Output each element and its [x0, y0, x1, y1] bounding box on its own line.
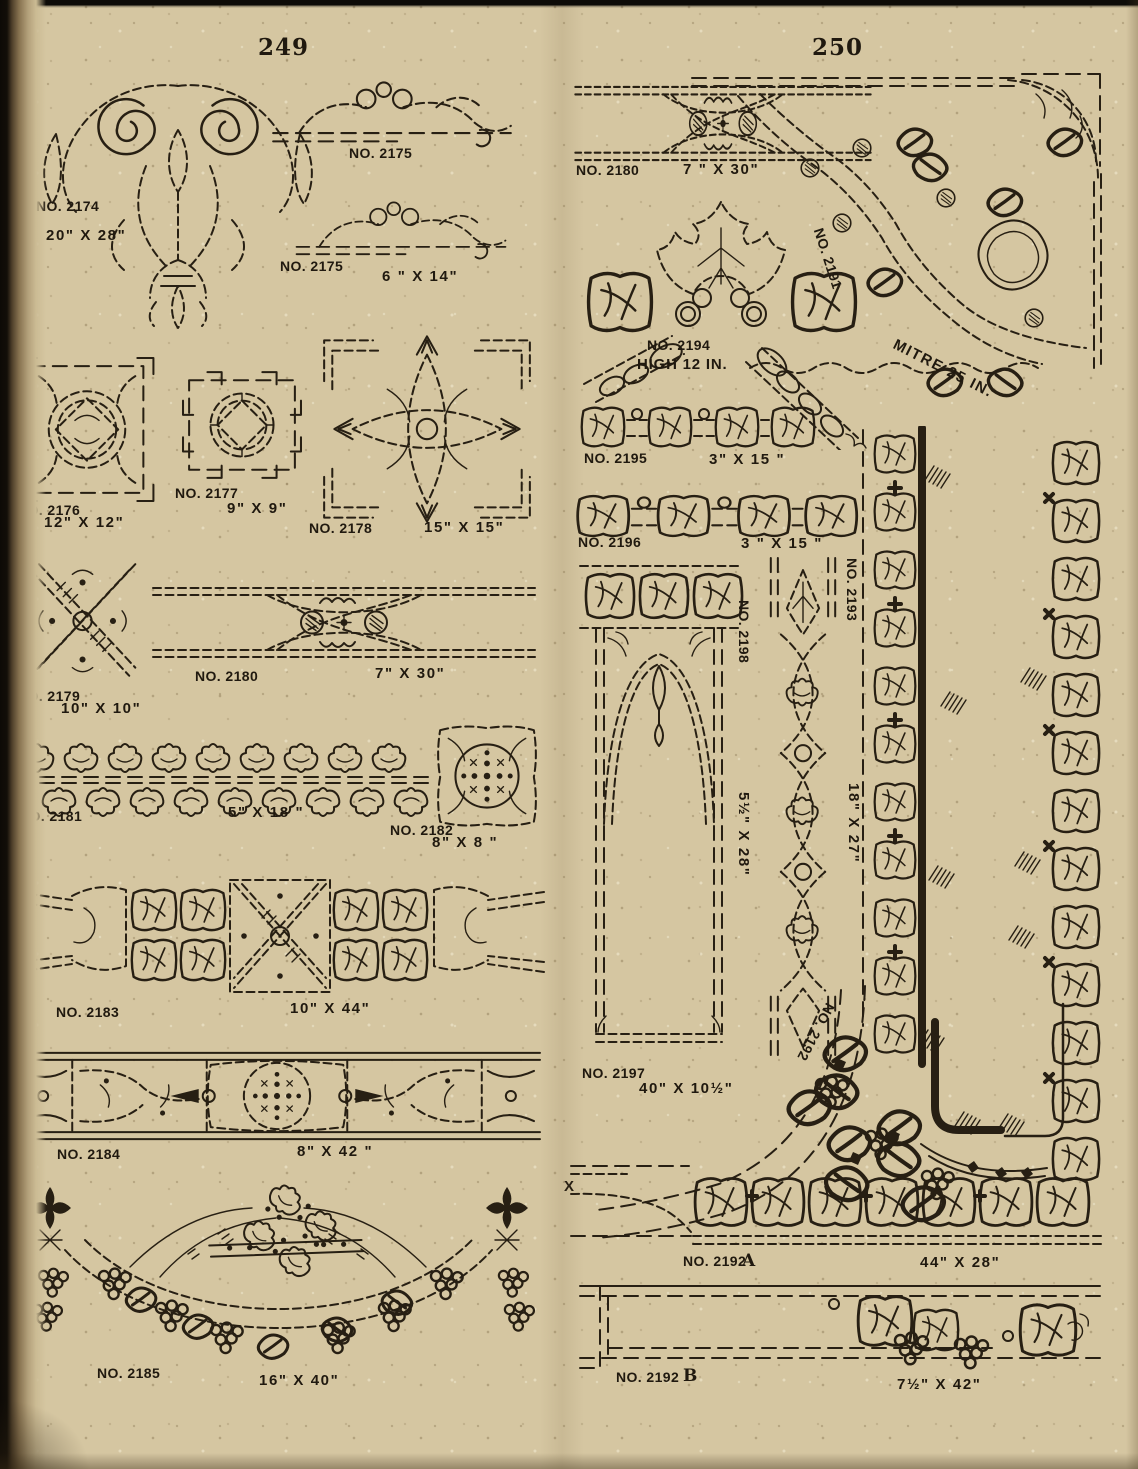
catalog-number-2184: NO. 2184 [57, 1146, 120, 1162]
dimensions-2184: 8" X 42 " [297, 1143, 373, 1160]
catalog-number-2178: NO. 2178 [309, 520, 372, 536]
dimensions-2180-right: 7 " X 30" [683, 161, 759, 178]
scan-edge-top [0, 0, 1138, 8]
dimensions-2185: 16" X 40" [259, 1372, 339, 1389]
scan-corner-shadow [0, 1399, 90, 1469]
catalog-number-2185: NO. 2185 [97, 1365, 160, 1381]
dimensions-2196: 3 " X 15 " [741, 535, 823, 552]
catalog-number-2177: NO. 2177 [175, 485, 238, 501]
scan-edge-right [1126, 0, 1138, 1469]
catalog-number-2198: NO. 2198 [736, 600, 752, 663]
catalog-number-2174: NO. 2174 [36, 198, 99, 214]
stencil-art-2179 [16, 552, 144, 694]
variant-letter-2192-a: A [742, 1251, 756, 1271]
dimensions-2183: 10" X 44" [290, 1000, 370, 1017]
stencil-art-2184 [10, 1040, 544, 1152]
x-reference-marker: X [564, 1178, 574, 1195]
stencil-art-2176 [16, 352, 158, 508]
catalog-number-2196: NO. 2196 [578, 534, 641, 550]
variant-letter-2192-b: B [683, 1366, 698, 1386]
dimensions-2198: 5½" X 28" [735, 792, 752, 877]
catalog-number-2192-b: NO. 2192 [616, 1369, 679, 1385]
stencil-art-2185 [10, 1182, 548, 1378]
catalog-scan-page: 249 250 NO. 2174 20" X 28" NO. 2175 NO. … [0, 0, 1138, 1469]
stencil-art-2183 [12, 866, 548, 1008]
dimensions-2195: 3" X 15 " [709, 451, 785, 468]
dimensions-2174: 20" X 28" [46, 227, 126, 244]
catalog-number-2194: NO. 2194 [647, 337, 710, 353]
dimensions-2197: 40" X 10½" [639, 1080, 733, 1097]
dimensions-2192-a: 44" X 28" [920, 1254, 1000, 1271]
stencil-art-2192-b [572, 1276, 1104, 1374]
catalog-number-2195: NO. 2195 [584, 450, 647, 466]
catalog-number-2180-left: NO. 2180 [195, 668, 258, 684]
stencil-art-2182 [432, 720, 542, 832]
catalog-number-2192-a: NO. 2192 [683, 1253, 746, 1269]
dimensions-2177: 9" X 9" [227, 500, 287, 517]
catalog-number-2181: NO. 2181 [19, 808, 82, 824]
dimensions-2180-left: 7" X 30" [375, 665, 445, 682]
dimensions-2194-height: HIGH 12 IN. [637, 356, 728, 373]
page-number-left: 249 [258, 34, 309, 61]
catalog-number-2175-top: NO. 2175 [349, 145, 412, 161]
dimensions-2182: 8" X 8 " [432, 834, 498, 851]
stencil-art-2180-left [148, 572, 540, 672]
catalog-number-2180-right: NO. 2180 [576, 162, 639, 178]
stencil-art-2178 [316, 328, 538, 530]
catalog-number-2193: NO. 2193 [844, 558, 860, 621]
dimensions-2175: 6 " X 14" [382, 268, 458, 285]
page-number-right: 250 [812, 34, 863, 61]
dimensions-2176: 12" X 12" [44, 514, 124, 531]
dimensions-2193: 18" X 27" [845, 783, 862, 863]
catalog-number-2175-bottom: NO. 2175 [280, 258, 343, 274]
dimensions-2181: 5" X 18 " [228, 804, 304, 821]
dimensions-2192-b: 7½" X 42" [897, 1376, 982, 1393]
scan-edge-bottom [0, 1453, 1138, 1469]
catalog-number-2197: NO. 2197 [582, 1065, 645, 1081]
stencil-art-2175-top [268, 76, 516, 154]
catalog-number-2183: NO. 2183 [56, 1004, 119, 1020]
stencil-art-2192-a [569, 430, 1110, 1292]
dimensions-2179: 10" X 10" [61, 700, 141, 717]
dimensions-2178: 15" X 15" [424, 519, 504, 536]
stencil-art-2177 [176, 364, 308, 484]
